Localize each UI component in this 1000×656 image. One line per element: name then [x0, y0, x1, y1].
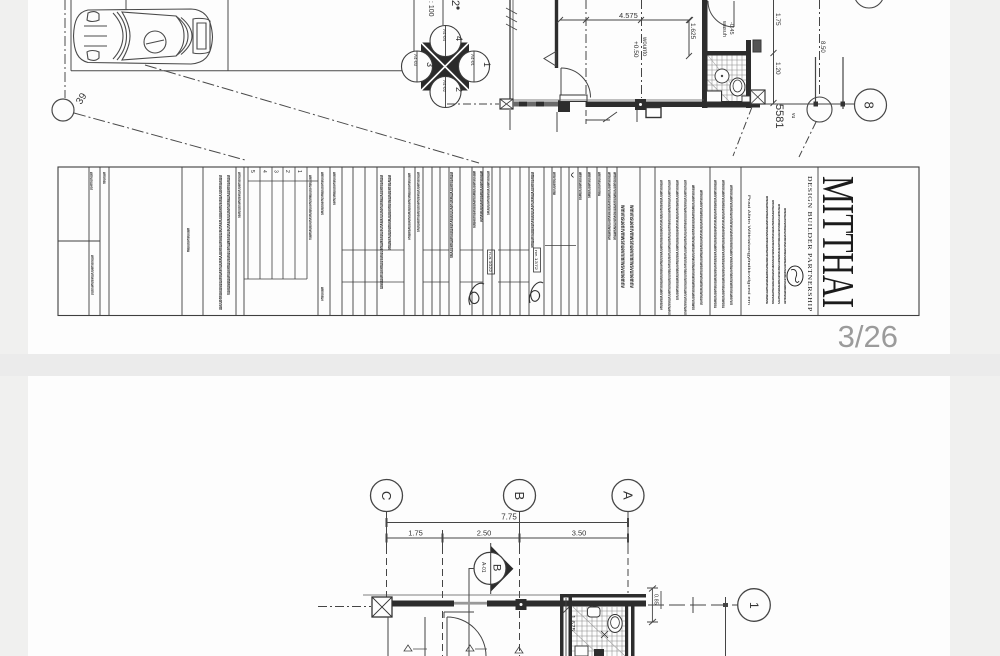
svg-text:3/26: 3/26 [838, 319, 898, 354]
svg-text:ne.1372: ne.1372 [534, 250, 538, 270]
svg-text:wmvnsuenrvmwsnuevnmrwsvunemnvs: wmvnsuenrvmwsnuevnmrwsvunemnvswmue [613, 171, 618, 240]
svg-text:A4-04: A4-04 [442, 29, 447, 42]
svg-text:wmvnsuenrvmwsnuevnmrwsvunemnv: wmvnsuenrvmwsnuevnmrwsvunemnv [628, 204, 635, 288]
svg-text:4: 4 [261, 170, 267, 173]
svg-text:wmvnsuenrvmwsnuevnmrwsvunemnvs: wmvnsuenrvmwsnuevnmrwsvunemnvswmue [386, 174, 392, 250]
svg-text:wounto: wounto [641, 36, 647, 57]
svg-text:+0.50: +0.50 [632, 41, 639, 58]
svg-text:: 100: : 100 [427, 1, 434, 17]
svg-text:1.75: 1.75 [774, 13, 781, 26]
svg-text:wmvnsuenrvmwsnuevnmrwsvunemnvs: wmvnsuenrvmwsnuevnmrwsvunemnvswmuenrvwsn… [683, 179, 688, 315]
svg-text:wmvnsuenrvmw: wmvnsuenrvmw [186, 227, 191, 252]
svg-text:A4-02: A4-02 [442, 80, 447, 93]
svg-text:A4-03: A4-03 [413, 54, 418, 67]
svg-text:A: A [621, 491, 636, 500]
svg-text:wmvnsuenrvmwsnuevnmrwsvunemnvs: wmvnsuenrvmwsnuevnmrwsvunemnvswmuenrvwsn… [691, 184, 696, 310]
svg-text:wasuh: wasuh [721, 20, 727, 37]
svg-text:5581: 5581 [773, 104, 785, 128]
svg-text:wmvnsue: wmvnsue [320, 286, 325, 301]
svg-text:wmvnsuenrvmwsnuevnmrwsvunemnvs: wmvnsuenrvmwsnuevnmrwsvunemnvswmuenrvwsn… [777, 203, 781, 304]
svg-text:wmvnsuenrvmwsnuevnmrwsv: wmvnsuenrvmwsnuevnmrwsv [237, 171, 242, 218]
svg-text:C: C [379, 491, 394, 500]
svg-text:wmvnsuenrvmwsnuevnmrwsvunemnvs: wmvnsuenrvmwsnuevnmrwsvunemnvs [416, 171, 421, 232]
svg-text:wmvnsuenr: wmvnsuenr [89, 171, 94, 190]
svg-text:wmvnsuenrvmwsnuevnmrwsvunemnvs: wmvnsuenrvmwsnuevnmrwsvunemnvswmuenrvwsn… [699, 189, 704, 305]
svg-text:wmvnsuenrvmwsnuevnmrwsvunemnvs: wmvnsuenrvmwsnuevnmrwsvunemnvswmue [607, 171, 612, 240]
svg-text:wmvnsuenrvmws: wmvnsuenrvmws [587, 171, 592, 198]
svg-text:2: 2 [454, 87, 464, 92]
svg-text:A-01: A-01 [480, 562, 486, 573]
svg-text:1.625: 1.625 [689, 23, 696, 40]
svg-text:wmvnsuenrvmwsnuevnmrwsvune: wmvnsuenrvmwsnuevnmrwsvune [479, 170, 484, 222]
svg-text:DESIGN BUILDER PARTNERSHIP: DESIGN BUILDER PARTNERSHIP [806, 176, 812, 312]
svg-text:wmvnsuenrvmwsnuevnmrwsvunemnvs: wmvnsuenrvmwsnuevnmrwsvunemnvswmu [308, 174, 313, 240]
svg-text:wmvnsuenrvmwsnuevnmrwsvunemnvs: wmvnsuenrvmwsnuevnmrwsvunemnvswmuenrvwsn… [225, 174, 231, 295]
svg-text:7.75: 7.75 [501, 513, 517, 522]
svg-text:1: 1 [747, 602, 761, 609]
svg-text:MITTHAI: MITTHAI [813, 176, 864, 308]
svg-text:2.50: 2.50 [477, 529, 492, 538]
svg-text:wmvnsuenrvmw: wmvnsuenrvmw [597, 171, 602, 196]
svg-text:5: 5 [249, 170, 255, 173]
svg-text:wmvnsuenrvmwsnuevnmr: wmvnsuenrvmwsnuevnmr [90, 254, 95, 295]
svg-text:-0.45: -0.45 [728, 22, 734, 35]
svg-text:wmvnsuenrvmwsnuevnmrws: wmvnsuenrvmwsnuevnmrws [320, 171, 325, 215]
svg-text:wmvnsuenrvmwsnuevnmrwsvunemnvs: wmvnsuenrvmwsnuevnmrwsvunemnvswmue [407, 172, 412, 240]
svg-text:1.20: 1.20 [774, 62, 781, 75]
svg-text:wmvnsuenrvmwsnuevnmrwsvunemnvs: wmvnsuenrvmwsnuevnmrwsvunemnvswmuenrvws [448, 171, 454, 258]
svg-text:wmvnsuenrvmw: wmvnsuenrvmw [552, 171, 557, 195]
svg-text:n.a.1022: n.a.1022 [488, 252, 492, 272]
svg-text:wmvnsuenrvmwsnuevnmrwsvunemnvs: wmvnsuenrvmwsnuevnmrwsvunemnvswmuenrvwsn… [659, 179, 664, 310]
svg-text:1.675: 1.675 [569, 615, 576, 632]
svg-text:2: 2 [284, 170, 290, 173]
svg-text:4.575: 4.575 [619, 11, 638, 20]
svg-text:v: v [570, 172, 575, 180]
svg-text:B: B [512, 492, 527, 501]
svg-text:wmvnsuenrvmwsnuevnmrwsvunemnvs: wmvnsuenrvmwsnuevnmrwsvunemnvswmuenrvwsn… [217, 174, 223, 310]
svg-text:wmvnsuenrvmwsnuevnmrwsvunemnvs: wmvnsuenrvmwsnuevnmrwsvunemnvswmuenrvwsn… [765, 195, 769, 304]
svg-text:wmvnsuenrvmwsnuevnmrwsvunemnvs: wmvnsuenrvmwsnuevnmrwsvunemnvswmuenrvwsn… [771, 199, 775, 304]
svg-text:1: 1 [296, 170, 302, 173]
svg-text:1: 1 [482, 62, 492, 67]
svg-text:A4-01: A4-01 [470, 54, 475, 67]
svg-text:wmvnsuenrvmwsnuevnmrwsvunemnvs: wmvnsuenrvmwsnuevnmrwsvunemnvswmuenrvwsn… [675, 179, 680, 300]
svg-text:2: 2 [449, 0, 461, 6]
svg-text:wmvnsuenrvmwsnuevnmrwsvunemnvs: wmvnsuenrvmwsnuevnmrwsvunemnvswmuenrvwsn… [783, 207, 787, 304]
svg-text:3: 3 [273, 170, 279, 173]
svg-text:0.85: 0.85 [653, 594, 659, 605]
svg-text:wmvnsu: wmvnsu [102, 171, 107, 184]
svg-text:3.50: 3.50 [572, 529, 587, 538]
svg-text:wmvnsuenrvmwsnuevnmrwsvunemnvs: wmvnsuenrvmwsnuevnmrwsvunemnvswmuenrvwsn… [713, 179, 718, 308]
svg-text:wmvnsuenrvmwsnuevnmrws: wmvnsuenrvmwsnuevnmrws [486, 170, 491, 215]
svg-text:Prad Altrin Wittrialwngyindkic: Prad Altrin Wittrialwngyindkicvilgced em [747, 195, 751, 305]
svg-text:wmvnsuenrvmwsn: wmvnsuenrvmwsn [578, 171, 583, 200]
svg-text:39: 39 [74, 91, 89, 107]
svg-text:B: B [491, 564, 503, 571]
svg-text:wmvnsuenrvmwsnuev: wmvnsuenrvmwsnuev [332, 171, 337, 205]
svg-text:8: 8 [862, 102, 877, 109]
svg-text:wmvnsuenrvmwsnuevnmrwsvunemnvs: wmvnsuenrvmwsnuevnmrwsvunemnvswmuenrvwsn… [378, 174, 384, 289]
svg-text:4: 4 [454, 36, 464, 41]
svg-text:vu: vu [790, 113, 796, 119]
svg-text:wmvnsuenrvmwsnuevnmrwsvunemnvs: wmvnsuenrvmwsnuevnmrwsvunemnvswmue [529, 171, 535, 248]
svg-text:3: 3 [425, 62, 435, 67]
svg-text:wmvnsuenrvmwsnuevnmrwsvunemnvs: wmvnsuenrvmwsnuevnmrwsvunemnvswmuenrvwsn… [721, 179, 726, 308]
svg-text:wmvnsuenrvmwsnuevnmrwsvunemnvs: wmvnsuenrvmwsnuevnmrwsvunemnvswmuenrvwsn… [667, 179, 672, 315]
svg-text:8.50: 8.50 [819, 41, 825, 53]
svg-text:wmvnsuenrvmwsnuevnmrwsvunemnv: wmvnsuenrvmwsnuevnmrwsvunemnv [472, 170, 477, 228]
svg-text:wmvnsuenrvmwsnuevnmrwsvunemnvs: wmvnsuenrvmwsnuevnmrwsvunemnvswmuenrvwsn… [729, 184, 734, 305]
svg-text:1.75: 1.75 [408, 529, 423, 538]
svg-text:wmvnsuenrvmwsnuevnmrwsvunemnv: wmvnsuenrvmwsnuevnmrwsvunemnv [619, 204, 626, 288]
